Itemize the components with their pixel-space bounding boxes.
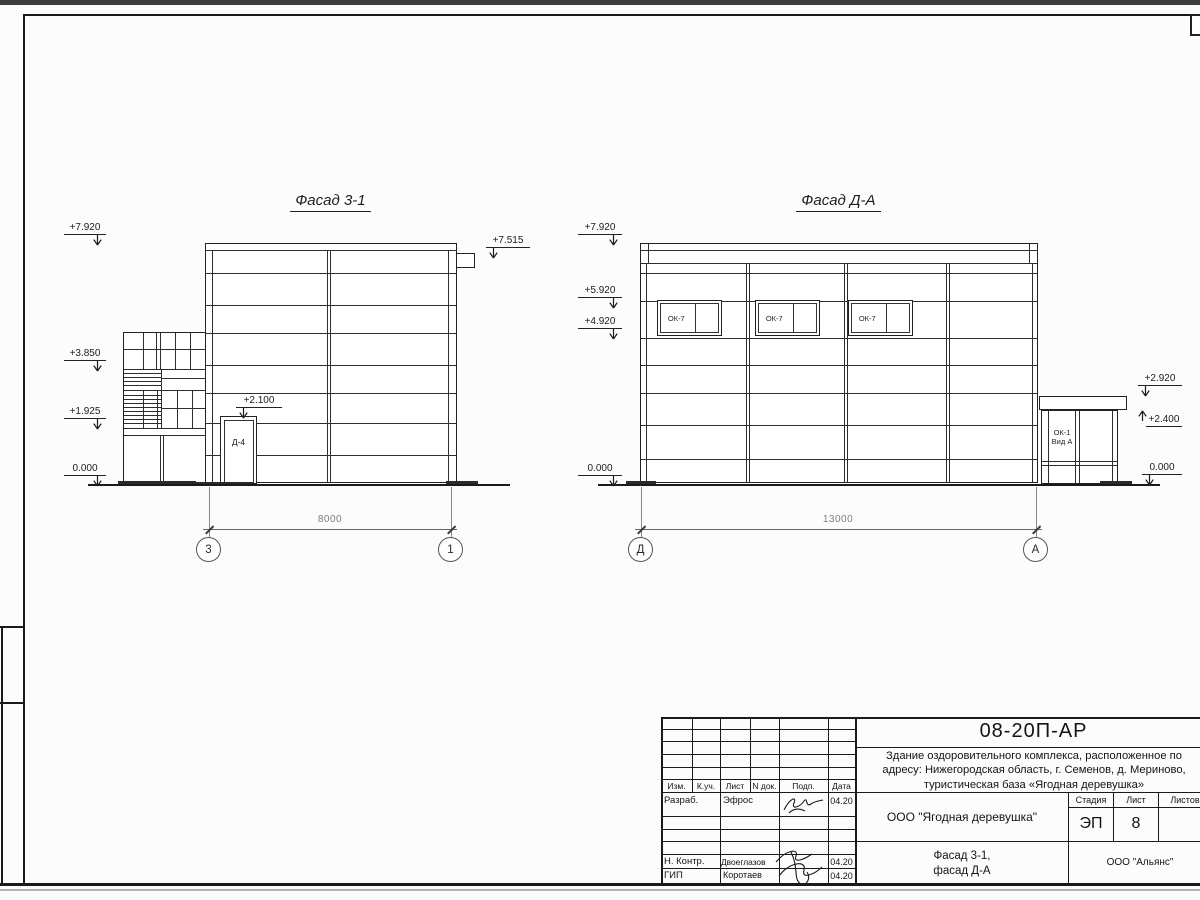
tb-col-kuch: К.уч. <box>692 781 720 791</box>
level-arrow-icon <box>607 298 620 310</box>
margin-stamp-line <box>1 626 3 884</box>
window-label: ОК-7 <box>756 301 793 335</box>
frame-bottom-line <box>0 883 1200 886</box>
dimension-label: 8000 <box>300 514 360 525</box>
tb-col-data: Дата <box>828 781 855 791</box>
level-arrow-icon <box>607 235 620 247</box>
corner-reference-box <box>1190 14 1200 36</box>
window-top-edge <box>0 0 1200 5</box>
tb-subtitle: Фасад 3-1, фасад Д-А <box>857 849 1067 879</box>
tb-stage-label: Стадия <box>1069 795 1113 805</box>
sheet-bottom-edge <box>0 889 1200 891</box>
facade1-ground-line <box>88 484 510 486</box>
level-arrow-icon <box>237 408 250 420</box>
level-arrow-icon <box>91 476 104 488</box>
tb-project-description: Здание оздоровительного комплекса, распо… <box>858 749 1200 792</box>
facade1-roof-vent <box>456 253 475 268</box>
level-mark: +1.925 <box>64 406 106 419</box>
axis-circle: Д <box>628 537 653 562</box>
frame-left-line <box>23 14 25 885</box>
tb-role: Н. Контр. <box>664 856 704 867</box>
level-arrow-icon <box>1143 475 1156 487</box>
window-label: ОК-7 <box>849 301 886 335</box>
signature <box>781 794 825 820</box>
tb-date: 04.20 <box>828 796 855 806</box>
level-arrow-icon <box>91 361 104 373</box>
margin-stamp-line <box>0 626 24 628</box>
facade2-window: ОК-7 <box>657 300 722 336</box>
facade2-window: ОК-7 <box>848 300 913 336</box>
level-arrow-icon <box>1139 386 1152 398</box>
level-mark: +7.515 <box>486 235 530 248</box>
tb-role: Разраб. <box>664 795 698 806</box>
facade1-title: Фасад 3-1 <box>258 192 403 212</box>
door-label: Д-4 <box>221 437 256 447</box>
margin-stamp-line <box>0 702 24 704</box>
axis-circle: А <box>1023 537 1048 562</box>
tb-name: Эфрос <box>723 795 753 806</box>
window-label: ОК-7 <box>658 301 695 335</box>
level-arrow-icon <box>487 248 500 260</box>
tb-sheets-label: Листов <box>1159 795 1200 805</box>
level-mark: +2.920 <box>1138 373 1182 386</box>
facade2-ground-line <box>598 484 1160 486</box>
frame-top-line <box>23 14 1200 16</box>
tb-date: 04.20 <box>828 871 855 881</box>
facade2-annex-fascia <box>1039 396 1127 410</box>
level-mark: 0.000 <box>1142 462 1182 475</box>
level-arrow-icon <box>607 476 620 488</box>
level-mark: 0.000 <box>64 463 106 476</box>
tb-col-izm: Изм. <box>661 781 692 791</box>
dimension-label: 13000 <box>808 514 868 525</box>
level-mark: 0.000 <box>578 463 622 476</box>
tb-document-code: 08-20П-АР <box>857 720 1200 743</box>
level-mark: +2.100 <box>236 395 282 408</box>
level-arrow-icon <box>91 235 104 247</box>
facade1-door: Д-4 <box>220 416 257 484</box>
tb-col-podp: Подп. <box>779 781 828 791</box>
level-mark: +4.920 <box>578 316 622 329</box>
annex-window-label: ОК-1 Вид А <box>1049 428 1075 446</box>
level-mark: +3.850 <box>64 348 106 361</box>
facade1-annex <box>123 332 206 484</box>
tb-sheet-label: Лист <box>1114 795 1158 805</box>
axis-circle: 3 <box>196 537 221 562</box>
tb-stage-value: ЭП <box>1069 815 1113 833</box>
dimension-line <box>635 529 1042 530</box>
facade2-main-block <box>640 243 1038 483</box>
level-arrow-icon <box>607 329 620 341</box>
level-mark: +2.400 <box>1146 414 1182 427</box>
level-mark: +5.920 <box>578 285 622 298</box>
dimension-line <box>203 529 457 530</box>
level-mark: +7.920 <box>578 222 622 235</box>
level-mark: +7.920 <box>64 222 106 235</box>
facade2-annex-storefront: ОК-1 Вид А <box>1041 410 1118 484</box>
drawing-sheet: Фасад 3-1 <box>0 0 1200 900</box>
level-arrow-icon <box>91 419 104 431</box>
tb-name: Коротаев <box>723 870 762 880</box>
tb-role: ГИП <box>664 870 683 881</box>
tb-name: Двоеглазов <box>721 857 766 867</box>
tb-company: ООО "Альянс" <box>1069 842 1200 882</box>
facade2-title: Фасад Д-А <box>766 192 911 212</box>
axis-circle: 1 <box>438 537 463 562</box>
facade2-window: ОК-7 <box>755 300 820 336</box>
tb-date: 04.20 <box>828 857 855 867</box>
tb-sheet-value: 8 <box>1114 815 1158 833</box>
tb-col-list: Лист <box>720 781 750 791</box>
signature <box>771 846 829 891</box>
tb-organization: ООО "Ягодная деревушка" <box>857 793 1067 841</box>
tb-col-ndok: N док. <box>750 781 779 791</box>
